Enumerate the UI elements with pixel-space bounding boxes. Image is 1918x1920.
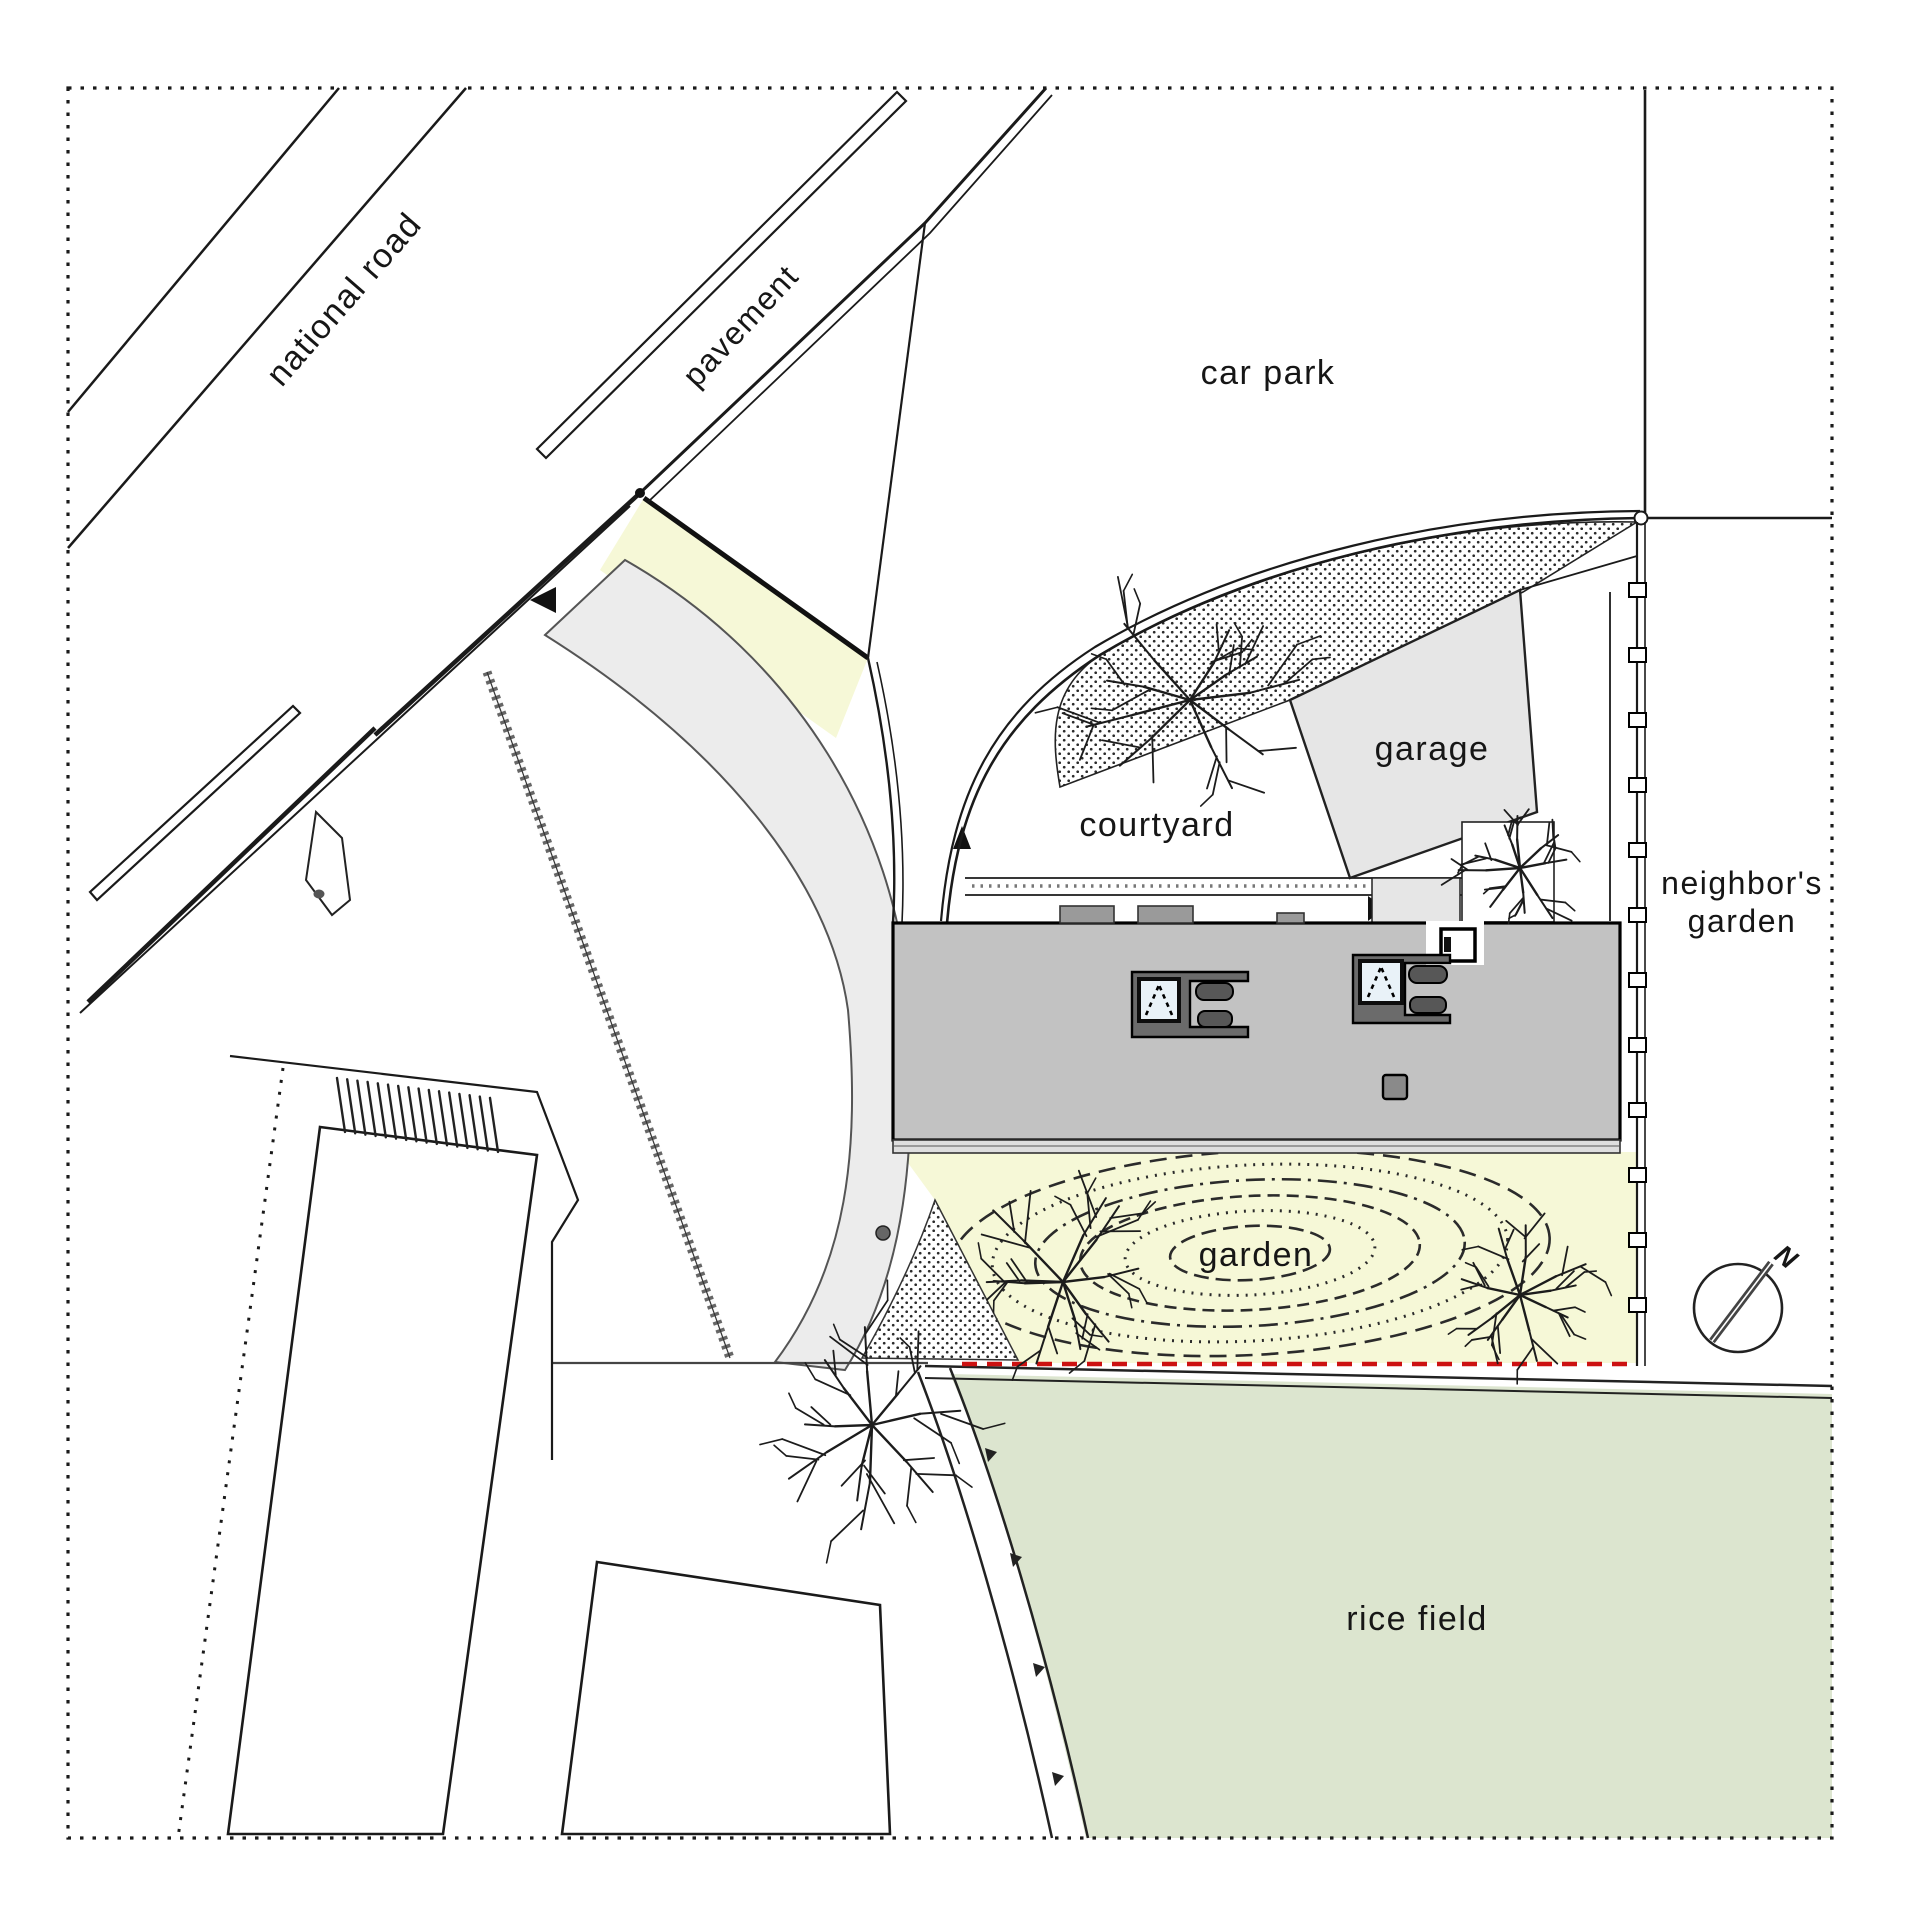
house-roof: [893, 923, 1620, 1140]
planter-box: [1462, 822, 1554, 922]
site-plan-drawing: N national road pavement car park garage…: [0, 0, 1918, 1920]
neighbor-building-2: [562, 1562, 890, 1834]
neighbors-garden-label-line2: garden: [1688, 903, 1797, 939]
roof-hatch: [1383, 1075, 1407, 1099]
site-plan-page: N national road pavement car park garage…: [0, 0, 1918, 1920]
rice-field-label: rice field: [1346, 1600, 1488, 1638]
junction-dot: [635, 488, 645, 498]
garden-label: garden: [1199, 1236, 1314, 1274]
house-building: [893, 906, 1620, 1153]
car-park-label: car park: [1201, 354, 1336, 392]
path-post-dot: [876, 1226, 890, 1240]
neighbors-garden-label-line1: neighbor's: [1661, 865, 1823, 901]
courtyard-label: courtyard: [1079, 806, 1234, 844]
garage-label: garage: [1375, 730, 1490, 768]
